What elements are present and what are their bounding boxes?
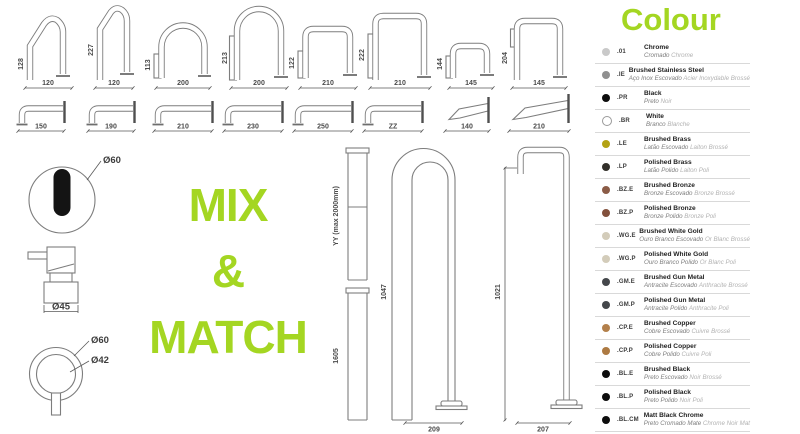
wall-spout-5: 250	[293, 101, 354, 133]
colour-name: Brushed Brass	[644, 136, 728, 144]
riser-column-1: YY (max 2000mm)	[333, 148, 369, 280]
legend-row: .CP.EBrushed CopperCobre Escovado Cuivre…	[595, 317, 750, 340]
colour-swatch-icon	[602, 116, 612, 126]
colour-code: .BL.E	[617, 371, 644, 377]
colour-labels: Brushed Stainless SteelAço Inox Escovado…	[629, 67, 750, 83]
legend-row: .LPPolished BrassLatão Polido Laiton Pol…	[595, 156, 750, 179]
dim-width: 250	[317, 124, 329, 131]
colour-name: Brushed White Gold	[639, 228, 750, 236]
legend-row: .BZ.EBrushed BronzeBronze Escovado Bronz…	[595, 179, 750, 202]
colour-code: .BL.CM	[617, 417, 644, 423]
legend-row: .01ChromeCromado Chrome	[595, 41, 750, 64]
colour-name: Polished White Gold	[644, 251, 736, 259]
colour-code: .CP.P	[617, 348, 644, 354]
colour-code: .IE	[617, 72, 629, 78]
colour-translation: Antracite Escovado Anthracite Brossé	[644, 282, 748, 290]
dim-height: YY (max 2000mm)	[333, 186, 340, 246]
dim-width: 209	[428, 427, 440, 434]
dim-outer-diameter: Ø60	[91, 335, 109, 346]
dim-diameter: Ø60	[103, 155, 121, 166]
colour-labels: Polished White GoldOuro Branco Polido Or…	[644, 251, 736, 267]
spout-drawing-6: 222 210	[359, 16, 432, 90]
colour-translation: Ouro Branco Polido Or Blanc Poli	[644, 259, 736, 267]
colour-swatch-icon	[602, 94, 610, 102]
floor-spout-2: 1021 207	[495, 150, 582, 434]
colour-swatch-icon	[602, 393, 610, 401]
spout-drawing-7: 144 145	[437, 46, 495, 90]
colour-code: .WG.P	[617, 256, 644, 262]
dim-width: 140	[461, 124, 473, 131]
colour-name: Brushed Stainless Steel	[629, 67, 750, 75]
colour-swatch-icon	[602, 347, 610, 355]
dim-width: 207	[537, 427, 549, 434]
colour-translation: Cobre Escovado Cuivre Brossé	[644, 328, 730, 336]
colour-name: Chrome	[644, 44, 693, 52]
dim-height: 113	[145, 59, 152, 70]
wall-spout-4: 230	[223, 101, 284, 133]
legend-row: .GM.PPolished Gun MetalAntracite Polido …	[595, 294, 750, 317]
colour-legend-rows: .01ChromeCromado Chrome.IEBrushed Stainl…	[595, 41, 800, 432]
legend-row: .WG.EBrushed White GoldOuro Branco Escov…	[595, 225, 750, 248]
dim-width: 145	[465, 80, 477, 87]
colour-code: .LE	[617, 141, 644, 147]
colour-name: Black	[644, 90, 672, 98]
colour-name: Polished Brass	[644, 159, 709, 167]
colour-swatch-icon	[602, 278, 610, 286]
colour-name: Polished Bronze	[644, 205, 716, 213]
spout-drawing-8: 204 145	[502, 21, 568, 90]
colour-translation: Preto Noir	[644, 98, 672, 106]
dim-height: 122	[289, 57, 296, 69]
colour-translation: Branco Blanche	[646, 121, 690, 129]
dim-width: 190	[105, 124, 117, 131]
dim-width: 200	[253, 80, 265, 87]
colour-swatch-icon	[602, 71, 610, 79]
wall-spout-6: ZZ	[363, 101, 424, 133]
colour-code: .PR	[617, 95, 644, 101]
legend-row: .BL.CMMatt Black ChromePreto Cromado Mat…	[595, 409, 750, 432]
colour-translation: Aço Inox Escovado Acier Inoxydable Bross…	[629, 75, 750, 83]
colour-labels: Polished BlackPreto Polido Noir Poli	[644, 389, 703, 405]
colour-translation: Latão Escovado Laiton Brossé	[644, 144, 728, 152]
dim-height: 1021	[495, 284, 502, 300]
sensor-face-drawing: Ø60	[29, 155, 121, 233]
colour-swatch-icon	[602, 416, 610, 424]
spout-drawing-2: 227 120	[88, 8, 135, 89]
mix-and-match-headline: MIX & MATCH	[133, 172, 323, 370]
colour-name: Polished Copper	[644, 343, 711, 351]
colour-code: .GM.E	[617, 279, 644, 285]
colour-translation: Bronze Escovado Bronze Brossé	[644, 190, 735, 198]
colour-translation: Antracite Polido Anthracite Poli	[644, 305, 729, 313]
dim-height: 128	[18, 58, 25, 70]
dim-height: 1047	[381, 284, 388, 300]
headline-line-1: MIX	[133, 172, 323, 238]
dim-width: 230	[247, 124, 259, 131]
dim-width: 200	[177, 80, 189, 87]
wall-spout-2: 190	[87, 101, 136, 133]
colour-translation: Cromado Chrome	[644, 52, 693, 60]
colour-swatch-icon	[602, 324, 610, 332]
colour-labels: BlackPreto Noir	[644, 90, 672, 106]
handle-ring-drawing: Ø60 Ø42	[30, 335, 109, 415]
colour-name: Polished Black	[644, 389, 703, 397]
colour-code: .BZ.E	[617, 187, 644, 193]
colour-name: Brushed Copper	[644, 320, 730, 328]
legend-row: .BL.EBrushed BlackPreto Escovado Noir Br…	[595, 363, 750, 386]
wall-spout-3: 210	[153, 101, 214, 133]
dim-height: 144	[437, 58, 444, 70]
colour-name: Polished Gun Metal	[644, 297, 729, 305]
colour-code: .BR	[619, 118, 646, 124]
colour-labels: Brushed BrassLatão Escovado Laiton Bross…	[644, 136, 728, 152]
dim-diameter: Ø45	[52, 302, 71, 313]
colour-swatch-icon	[602, 209, 610, 217]
floor-spout-1: 1047 209	[381, 149, 467, 434]
riser-column-2: 1605	[333, 288, 369, 420]
colour-labels: ChromeCromado Chrome	[644, 44, 693, 60]
colour-translation: Bronze Polido Bronze Poli	[644, 213, 716, 221]
headline-line-3: MATCH	[133, 304, 323, 370]
dim-height: 222	[359, 49, 366, 61]
legend-row: .GM.EBrushed Gun MetalAntracite Escovado…	[595, 271, 750, 294]
colour-swatch-icon	[602, 140, 610, 148]
colour-labels: Brushed BronzeBronze Escovado Bronze Bro…	[644, 182, 735, 198]
colour-labels: Brushed BlackPreto Escovado Noir Brossé	[644, 366, 722, 382]
colour-code: .BL.P	[617, 394, 644, 400]
colour-swatch-icon	[602, 301, 610, 309]
mixer-body-drawing: Ø45	[28, 247, 78, 313]
colour-labels: Polished BrassLatão Polido Laiton Poli	[644, 159, 709, 175]
wall-spout-7: 140	[444, 97, 491, 133]
colour-code: .01	[617, 49, 644, 55]
dim-width: ZZ	[389, 124, 398, 131]
legend-row: .PRBlackPreto Noir	[595, 87, 750, 110]
spout-drawing-1: 128 120	[18, 19, 74, 90]
dim-height: 213	[222, 52, 229, 64]
legend-row: .BZ.PPolished BronzeBronze Polido Bronze…	[595, 202, 750, 225]
colour-labels: WhiteBranco Blanche	[646, 113, 690, 129]
dim-width: 120	[42, 80, 54, 87]
colour-swatch-icon	[602, 255, 610, 263]
dim-width: 210	[177, 124, 189, 131]
spout-drawing-3: 113 200	[145, 26, 212, 90]
dim-width: 210	[394, 80, 406, 87]
dim-width: 120	[108, 80, 120, 87]
legend-row: .LEBrushed BrassLatão Escovado Laiton Br…	[595, 133, 750, 156]
colour-name: Brushed Bronze	[644, 182, 735, 190]
colour-code: .WG.E	[617, 233, 639, 239]
colour-labels: Polished Gun MetalAntracite Polido Anthr…	[644, 297, 729, 313]
dim-height: 1605	[333, 348, 340, 364]
colour-swatch-icon	[602, 48, 610, 56]
colour-name: Matt Black Chrome	[644, 412, 750, 420]
dim-width: 210	[322, 80, 334, 87]
colour-swatch-icon	[602, 163, 610, 171]
wall-spout-1: 150	[17, 101, 66, 133]
colour-code: .GM.P	[617, 302, 644, 308]
spout-drawing-4: 213 200	[222, 9, 289, 90]
colour-legend: Colour .01ChromeCromado Chrome.IEBrushed…	[595, 0, 800, 434]
colour-swatch-icon	[602, 186, 610, 194]
colour-labels: Brushed White GoldOuro Branco Escovado O…	[639, 228, 750, 244]
legend-row: .BL.PPolished BlackPreto Polido Noir Pol…	[595, 386, 750, 409]
colour-translation: Preto Cromado Mate Chrome Noir Mat	[644, 420, 750, 428]
dim-width: 210	[533, 124, 545, 131]
colour-swatch-icon	[602, 370, 610, 378]
colour-translation: Preto Polido Noir Poli	[644, 397, 703, 405]
colour-labels: Brushed Gun MetalAntracite Escovado Anth…	[644, 274, 748, 290]
colour-name: Brushed Gun Metal	[644, 274, 748, 282]
colour-swatch-icon	[602, 232, 610, 240]
colour-labels: Polished CopperCobre Polido Cuivre Poli	[644, 343, 711, 359]
colour-code: .LP	[617, 164, 644, 170]
legend-row: .IEBrushed Stainless SteelAço Inox Escov…	[595, 64, 750, 87]
colour-translation: Latão Polido Laiton Poli	[644, 167, 709, 175]
colour-translation: Cobre Polido Cuivre Poli	[644, 351, 711, 359]
colour-translation: Preto Escovado Noir Brossé	[644, 374, 722, 382]
legend-row: .WG.PPolished White GoldOuro Branco Poli…	[595, 248, 750, 271]
colour-labels: Brushed CopperCobre Escovado Cuivre Bros…	[644, 320, 730, 336]
colour-code: .BZ.P	[617, 210, 644, 216]
legend-row: .CP.PPolished CopperCobre Polido Cuivre …	[595, 340, 750, 363]
spout-drawing-5: 122 210	[289, 29, 358, 90]
headline-line-2: &	[133, 238, 323, 304]
colour-name: Brushed Black	[644, 366, 722, 374]
dim-width: 150	[35, 124, 47, 131]
dim-height: 227	[88, 44, 95, 56]
colour-labels: Matt Black ChromePreto Cromado Mate Chro…	[644, 412, 750, 428]
colour-name: White	[646, 113, 690, 121]
legend-row: .BRWhiteBranco Blanche	[595, 110, 750, 133]
colour-legend-title: Colour	[595, 0, 800, 41]
wall-spout-8: 210	[508, 94, 571, 133]
colour-translation: Ouro Branco Escovado Or Blanc Brossé	[639, 236, 750, 244]
colour-code: .CP.E	[617, 325, 644, 331]
dim-inner-diameter: Ø42	[91, 355, 109, 366]
colour-labels: Polished BronzeBronze Polido Bronze Poli	[644, 205, 716, 221]
dim-height: 204	[502, 52, 509, 64]
dim-width: 145	[533, 80, 545, 87]
